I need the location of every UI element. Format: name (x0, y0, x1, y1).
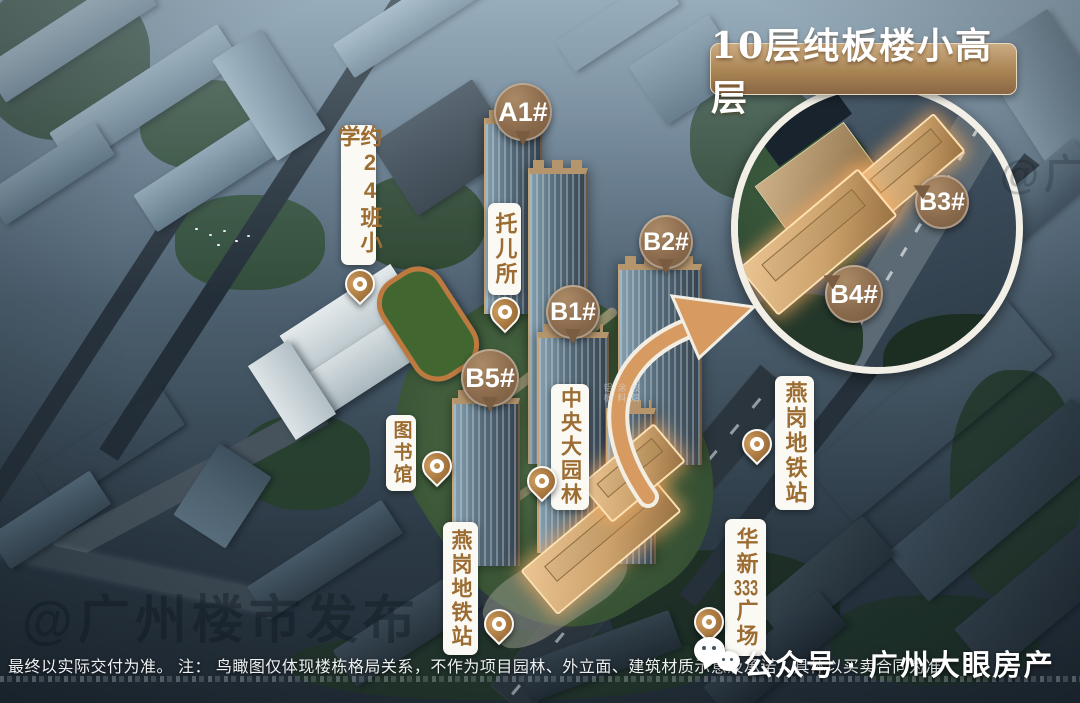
balloon-b4: B4# (825, 265, 883, 323)
poi-label-library-text: 图书馆 (392, 420, 411, 486)
balloon-a1-label: A1# (498, 97, 548, 128)
material-aluminum: 铝板 (601, 383, 614, 403)
balloon-b4-label: B4# (830, 279, 878, 310)
poi-label-plaza-text: 华新333广场 (735, 527, 757, 649)
balloon-b5-label: B5# (465, 363, 515, 394)
wechat-account-text: 公众号 · 广州大眼房产 (744, 642, 1055, 684)
watermark-top-right: @广州楼市发布 (1000, 142, 1080, 200)
inset-banner-text: 10层纯板楼小高层 (711, 17, 1016, 121)
material-glass: 玻璃 (628, 383, 641, 403)
metro-right-pin-icon (741, 428, 773, 470)
poi-label-library: 图书馆 (386, 415, 416, 491)
poi-label-nursery-text: 托儿所 (494, 212, 516, 287)
balloon-a1: A1# (494, 83, 552, 141)
central-garden-pin-icon (526, 465, 558, 507)
balloon-b1: B1# (546, 285, 600, 339)
poi-label-metro-center-text: 燕岗地铁站 (450, 529, 471, 649)
balloon-b2-label: B2# (643, 228, 689, 257)
balloon-b3: B3# (915, 175, 969, 229)
school-pin-icon (344, 268, 376, 310)
balloon-b3-label: B3# (919, 188, 965, 217)
poi-label-school-text: 约24班小学 (337, 125, 381, 265)
wechat-icon (694, 634, 744, 678)
watermark-bottom-left: @广州楼市发布 (22, 578, 420, 653)
poi-label-school: 约24班小学 (341, 125, 376, 265)
balloon-b2: B2# (639, 215, 693, 269)
material-notes: 玻璃 涂料 铝板 (600, 381, 642, 405)
poi-label-metro-right-text: 燕岗地铁站 (784, 381, 806, 506)
metro-center-pin-icon (483, 608, 515, 650)
nursery-pin-icon (489, 296, 521, 338)
balloon-b5: B5# (461, 349, 519, 407)
library-pin-icon (421, 450, 453, 492)
material-paint: 涂料 (615, 383, 628, 403)
inset-banner: 10层纯板楼小高层 (710, 43, 1017, 95)
aerial-rendering-scene: 玻璃 涂料 铝板 10层纯板楼小高层 A1# B1# B2# B5# B3# B… (0, 0, 1080, 703)
plaza-prefix: 华新 (734, 527, 759, 577)
poi-label-metro-right: 燕岗地铁站 (775, 376, 814, 510)
balloon-b1-label: B1# (550, 298, 596, 327)
poi-label-central-garden-text: 中央大园林 (560, 387, 581, 507)
poi-label-nursery: 托儿所 (488, 203, 521, 295)
inset-trees (883, 314, 1023, 374)
poi-label-metro-center: 燕岗地铁站 (443, 522, 478, 655)
plaza-number: 333 (734, 577, 759, 599)
inset-zoom-circle (731, 82, 1023, 374)
